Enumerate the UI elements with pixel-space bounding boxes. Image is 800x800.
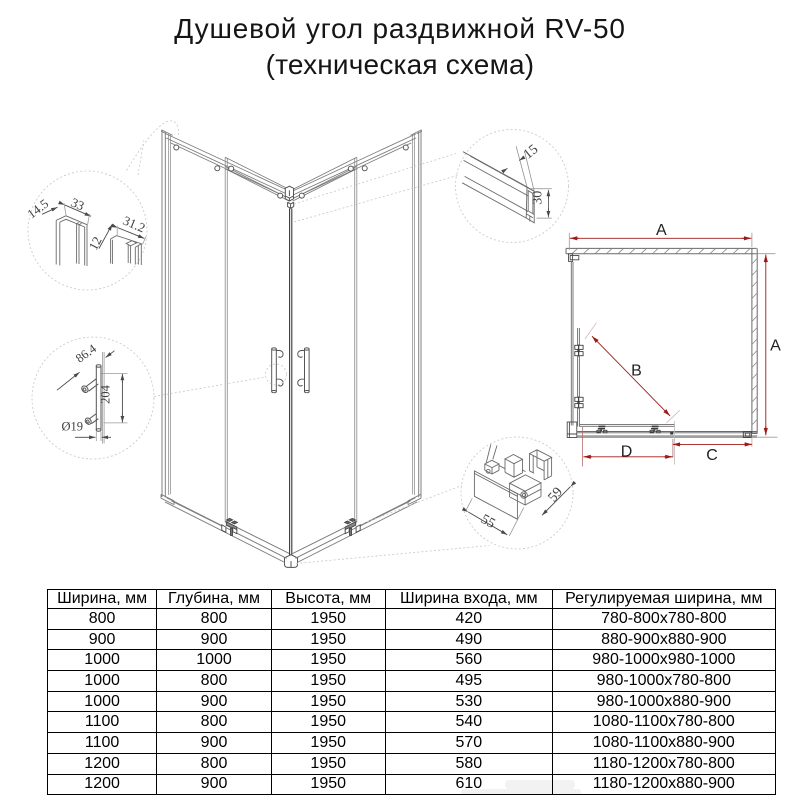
svg-text:14.5: 14.5 <box>24 196 51 222</box>
svg-text:31.2: 31.2 <box>121 213 148 236</box>
svg-text:30: 30 <box>530 191 545 205</box>
svg-text:15: 15 <box>521 142 541 162</box>
svg-text:55: 55 <box>478 512 498 532</box>
svg-text:12: 12 <box>85 234 104 253</box>
svg-text:Ø19: Ø19 <box>62 420 84 434</box>
svg-text:B: B <box>631 363 642 380</box>
svg-text:204: 204 <box>99 384 113 404</box>
svg-text:C: C <box>706 447 718 464</box>
svg-text:86.4: 86.4 <box>73 341 100 366</box>
svg-text:A: A <box>770 337 781 354</box>
svg-text:33: 33 <box>69 195 87 214</box>
svg-text:A: A <box>656 222 667 239</box>
svg-text:D: D <box>621 443 633 460</box>
svg-text:59: 59 <box>546 485 566 505</box>
